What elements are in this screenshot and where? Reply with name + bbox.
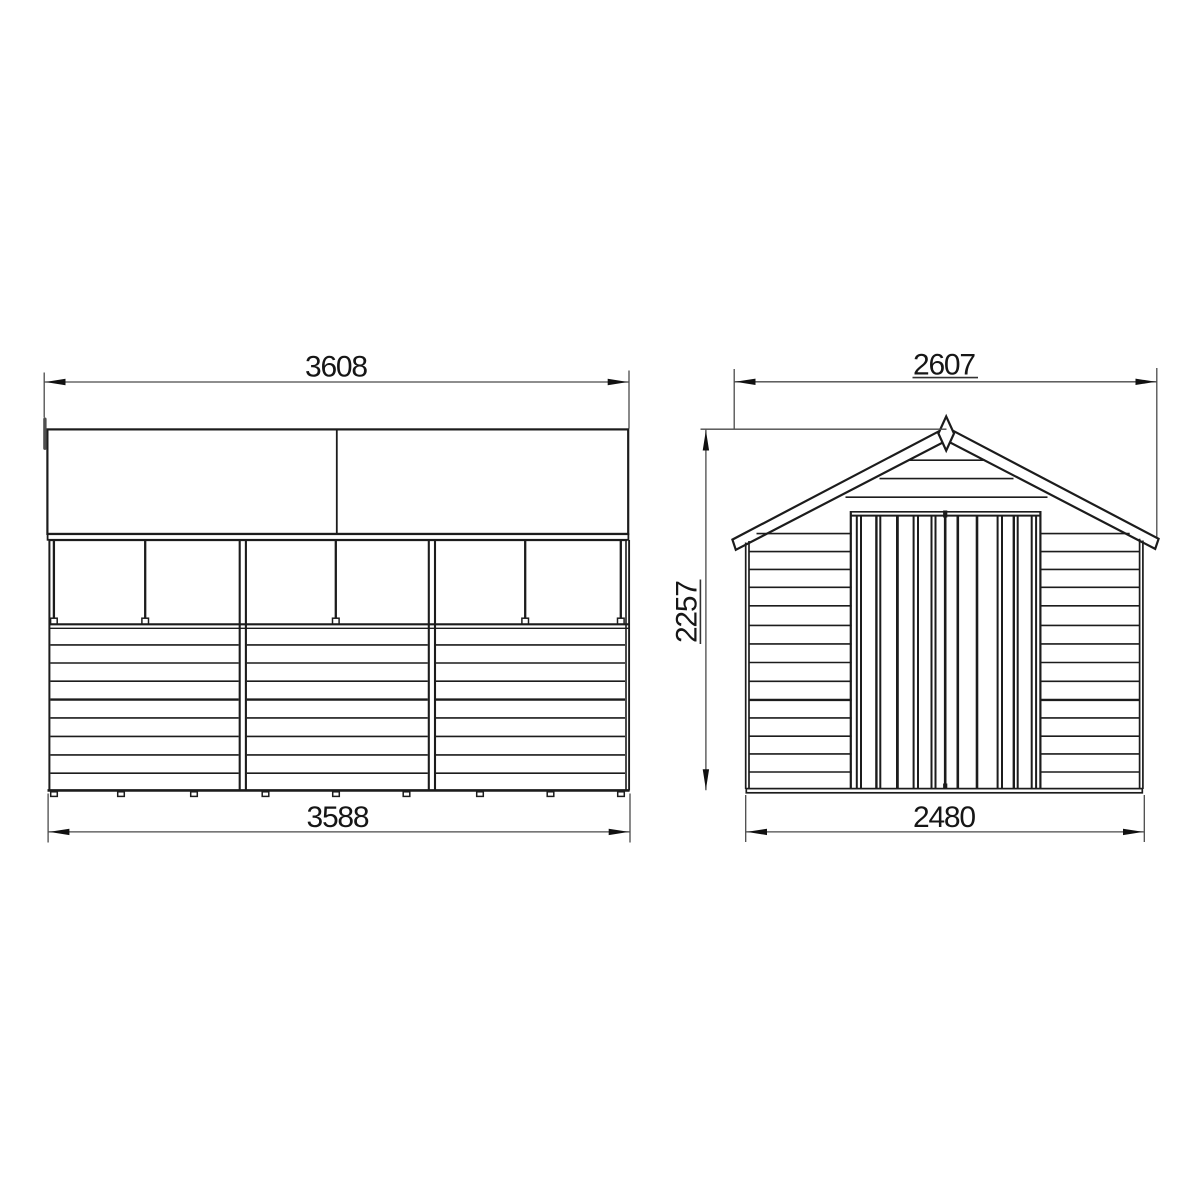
svg-text:2257: 2257 [671, 580, 704, 643]
svg-text:3588: 3588 [307, 801, 370, 834]
svg-text:3608: 3608 [305, 351, 368, 384]
svg-text:2607: 2607 [913, 348, 976, 381]
svg-text:2480: 2480 [913, 801, 976, 834]
